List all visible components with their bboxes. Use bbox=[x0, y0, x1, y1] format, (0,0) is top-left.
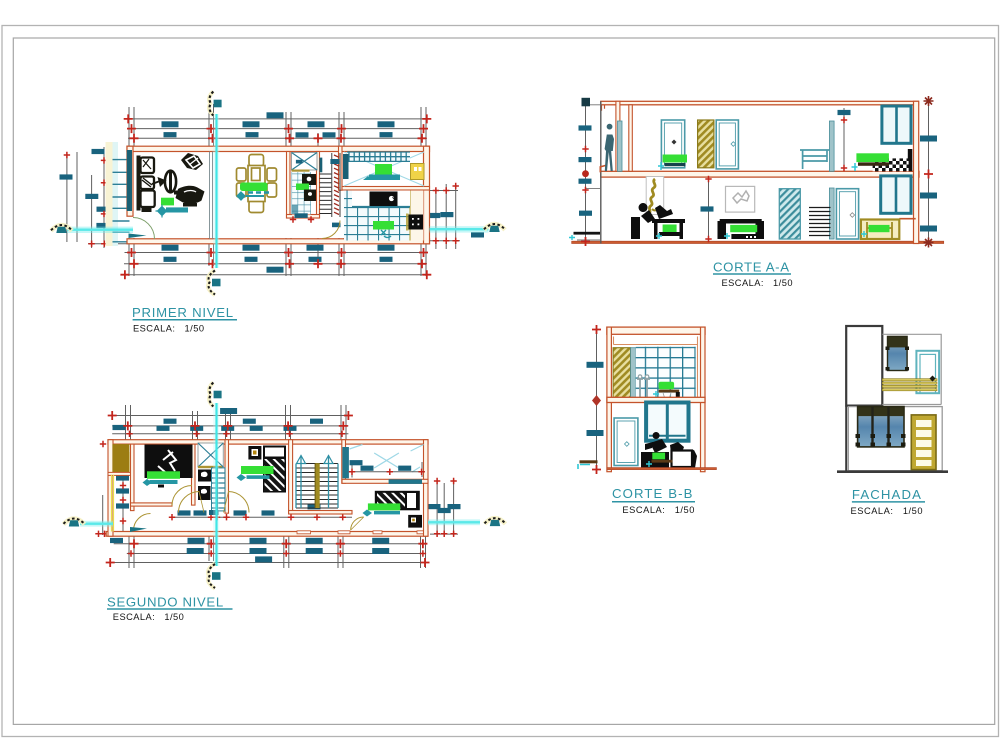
svg-text:ESCALA: 1/50: ESCALA: 1/50 bbox=[133, 324, 204, 334]
svg-text:PRIMER NIVEL: PRIMER NIVEL bbox=[132, 305, 235, 320]
svg-text:FACHADA: FACHADA bbox=[852, 487, 923, 502]
svg-text:CORTE A-A: CORTE A-A bbox=[713, 260, 791, 275]
svg-text:CORTE B-B: CORTE B-B bbox=[612, 486, 694, 501]
svg-text:ESCALA: 1/50: ESCALA: 1/50 bbox=[722, 278, 793, 288]
svg-text:ESCALA: 1/50: ESCALA: 1/50 bbox=[851, 506, 923, 516]
svg-text:ESCALA: 1/50: ESCALA: 1/50 bbox=[113, 612, 184, 622]
svg-text:SEGUNDO NIVEL: SEGUNDO NIVEL bbox=[107, 595, 225, 610]
svg-text:ESCALA: 1/50: ESCALA: 1/50 bbox=[622, 505, 694, 515]
